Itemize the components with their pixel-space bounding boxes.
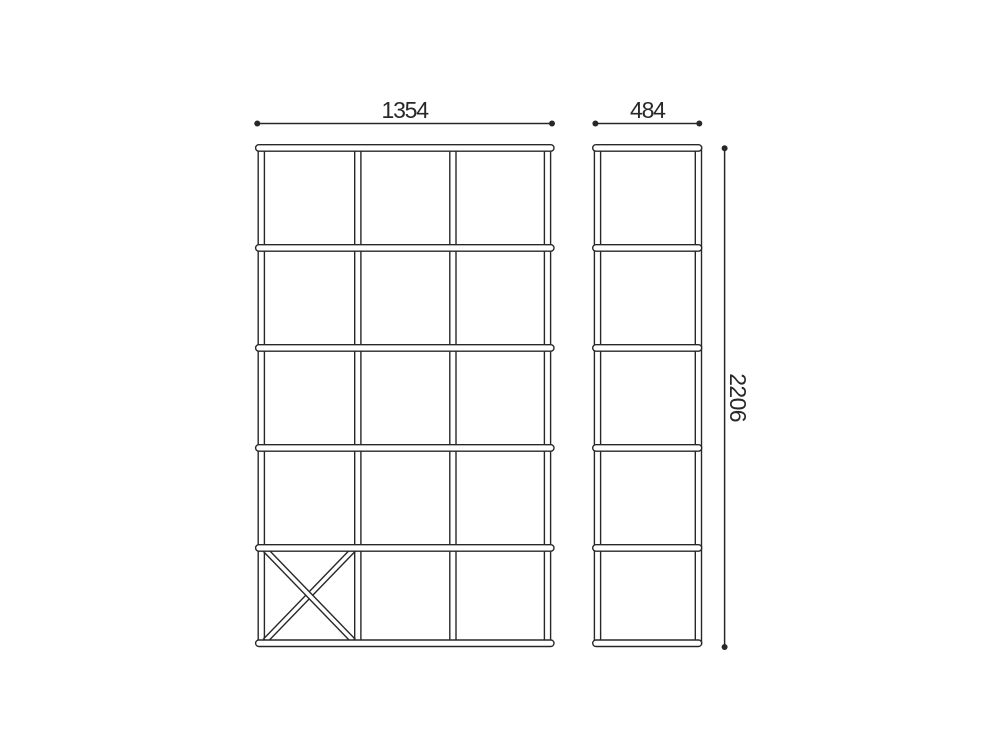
- svg-text:484: 484: [630, 97, 666, 123]
- svg-text:1354: 1354: [382, 97, 430, 123]
- svg-text:2206: 2206: [725, 373, 751, 422]
